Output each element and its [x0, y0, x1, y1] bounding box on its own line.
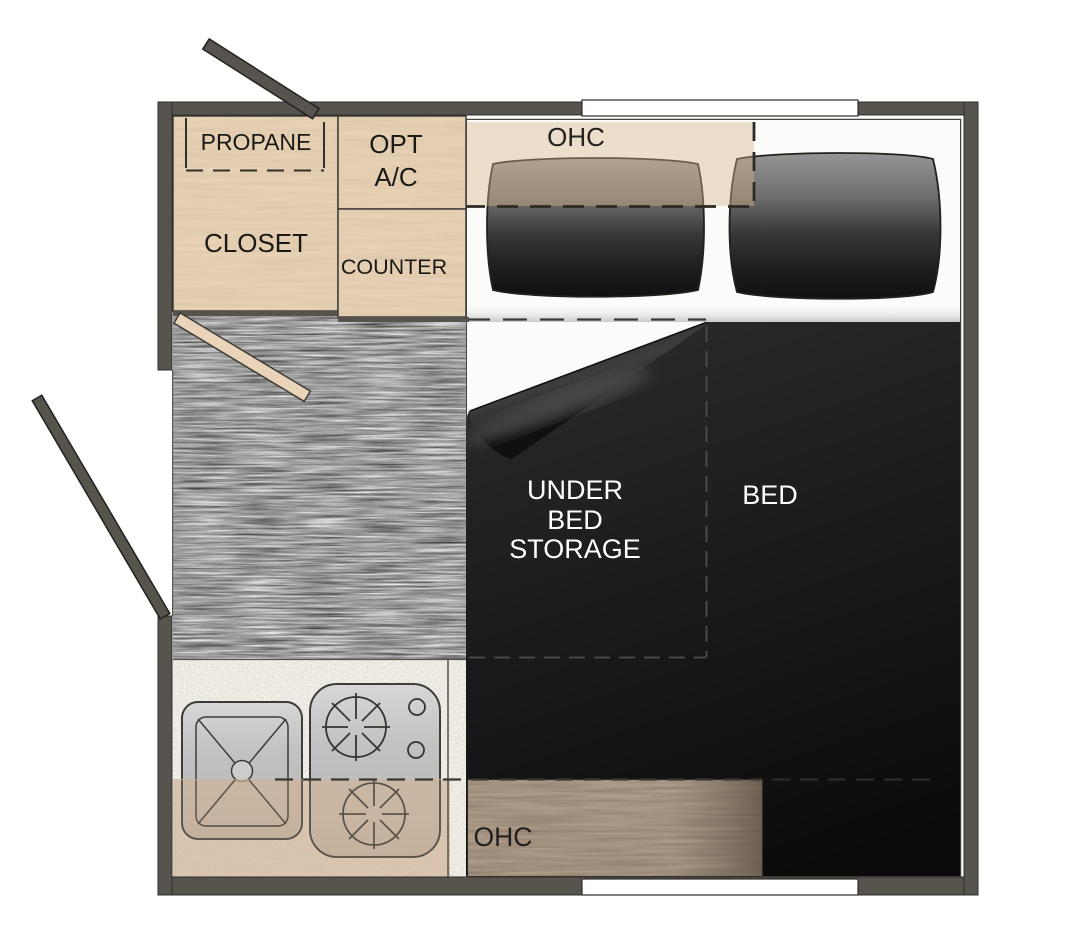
svg-text:BED: BED	[742, 480, 798, 510]
svg-text:A/C: A/C	[374, 162, 417, 192]
svg-text:PROPANE: PROPANE	[201, 129, 312, 155]
svg-text:UNDER: UNDER	[527, 475, 623, 505]
svg-text:BED: BED	[547, 505, 603, 535]
svg-text:COUNTER: COUNTER	[341, 255, 447, 279]
svg-text:STORAGE: STORAGE	[509, 534, 641, 564]
svg-text:OPT: OPT	[369, 129, 423, 159]
svg-text:OHC: OHC	[547, 122, 605, 152]
svg-text:OHC: OHC	[474, 822, 533, 852]
svg-text:CLOSET: CLOSET	[204, 228, 308, 258]
